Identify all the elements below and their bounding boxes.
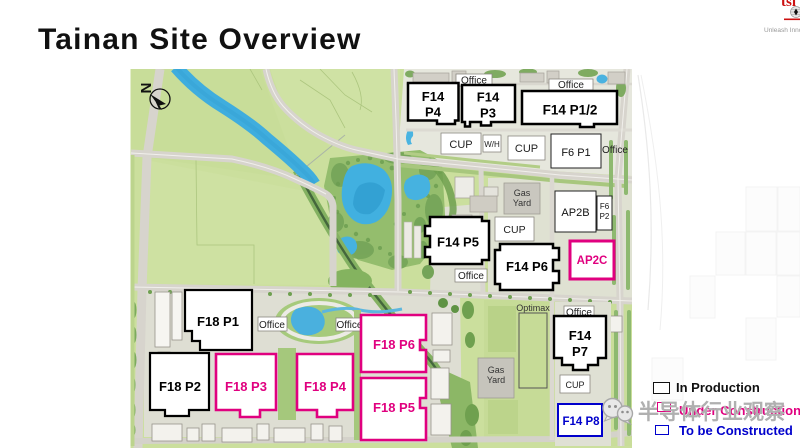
svg-text:Gas: Gas — [488, 365, 505, 375]
svg-text:Gas: Gas — [514, 188, 531, 198]
svg-text:AP2C: AP2C — [577, 255, 608, 267]
svg-text:P3: P3 — [480, 106, 496, 121]
svg-text:Yard: Yard — [513, 198, 531, 208]
svg-text:F6 P1: F6 P1 — [561, 147, 590, 159]
svg-text:F14 P6: F14 P6 — [506, 259, 548, 274]
svg-text:CUP: CUP — [449, 139, 472, 151]
svg-text:W/H: W/H — [484, 140, 500, 149]
svg-text:F18 P4: F18 P4 — [304, 379, 347, 394]
svg-text:P2: P2 — [600, 212, 610, 221]
svg-text:F18 P6: F18 P6 — [373, 337, 415, 352]
svg-text:N: N — [137, 83, 154, 94]
svg-text:Yard: Yard — [487, 375, 505, 385]
svg-text:F18 P3: F18 P3 — [225, 379, 267, 394]
svg-text:F14: F14 — [569, 328, 592, 343]
svg-text:P7: P7 — [572, 344, 588, 359]
svg-text:CUP: CUP — [565, 380, 584, 390]
svg-text:F14 P8: F14 P8 — [562, 416, 600, 428]
svg-text:F14 P5: F14 P5 — [437, 235, 479, 250]
svg-text:Office: Office — [458, 271, 484, 282]
svg-text:Office: Office — [259, 320, 285, 331]
svg-text:F14: F14 — [477, 90, 500, 105]
svg-text:P4: P4 — [425, 105, 442, 120]
svg-text:Office: Office — [602, 145, 628, 156]
svg-text:CUP: CUP — [503, 224, 525, 236]
svg-text:Optimax: Optimax — [516, 303, 550, 313]
svg-text:CUP: CUP — [515, 143, 538, 155]
svg-text:F18 P5: F18 P5 — [373, 400, 415, 415]
svg-text:F18 P2: F18 P2 — [159, 379, 201, 394]
svg-text:F18 P1: F18 P1 — [197, 314, 239, 329]
svg-text:Office: Office — [337, 320, 363, 331]
svg-text:Office: Office — [558, 80, 584, 91]
svg-text:F14 P1/2: F14 P1/2 — [543, 103, 598, 118]
svg-text:AP2B: AP2B — [561, 207, 589, 219]
svg-text:F6: F6 — [600, 202, 610, 211]
svg-text:F14: F14 — [422, 89, 445, 104]
